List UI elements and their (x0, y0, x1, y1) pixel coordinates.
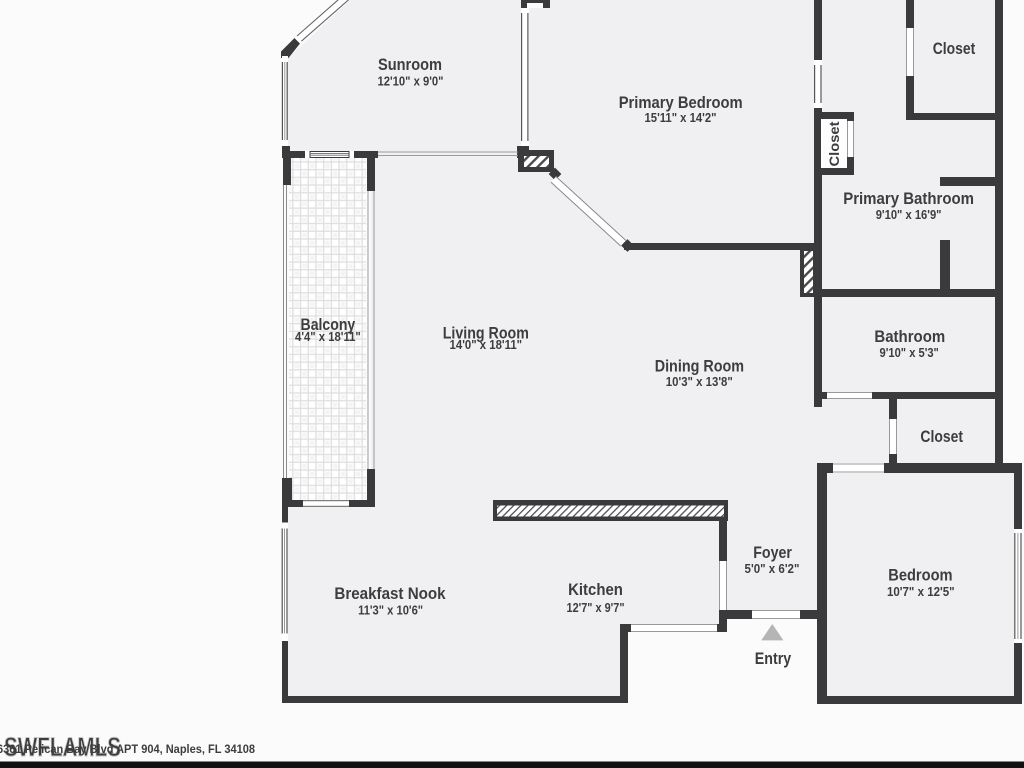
svg-text:Closet: Closet (826, 121, 842, 166)
svg-text:Breakfast Nook: Breakfast Nook (334, 584, 446, 603)
svg-text:12'7" x 9'7": 12'7" x 9'7" (567, 600, 625, 615)
svg-text:10'7" x 12'5": 10'7" x 12'5" (887, 584, 955, 599)
svg-text:12'10" x 9'0": 12'10" x 9'0" (378, 74, 444, 89)
svg-text:15'11" x 14'2": 15'11" x 14'2" (645, 110, 717, 125)
svg-text:Foyer: Foyer (753, 543, 792, 562)
svg-text:Bedroom: Bedroom (888, 565, 952, 584)
svg-text:9'10" x 16'9": 9'10" x 16'9" (876, 207, 942, 222)
svg-text:9'10" x 5'3": 9'10" x 5'3" (880, 345, 939, 360)
svg-text:10'3" x 13'8": 10'3" x 13'8" (666, 374, 733, 389)
svg-text:Primary Bathroom: Primary Bathroom (843, 189, 974, 208)
svg-text:Dining Room: Dining Room (655, 356, 744, 375)
svg-text:Sunroom: Sunroom (378, 55, 442, 74)
svg-text:Kitchen: Kitchen (568, 580, 623, 599)
svg-text:6361 Pelican Bay Blvd APT 904,: 6361 Pelican Bay Blvd APT 904, Naples, F… (0, 742, 255, 756)
svg-text:Closet: Closet (933, 39, 976, 58)
svg-text:14'0" x 18'11": 14'0" x 18'11" (450, 337, 523, 352)
svg-text:Closet: Closet (920, 427, 963, 446)
svg-text:11'3" x 10'6": 11'3" x 10'6" (358, 603, 423, 618)
svg-text:Entry: Entry (755, 649, 792, 668)
svg-text:Bathroom: Bathroom (874, 327, 945, 346)
svg-text:5'0" x 6'2": 5'0" x 6'2" (745, 561, 800, 576)
svg-text:4'4" x 18'11": 4'4" x 18'11" (295, 329, 361, 344)
